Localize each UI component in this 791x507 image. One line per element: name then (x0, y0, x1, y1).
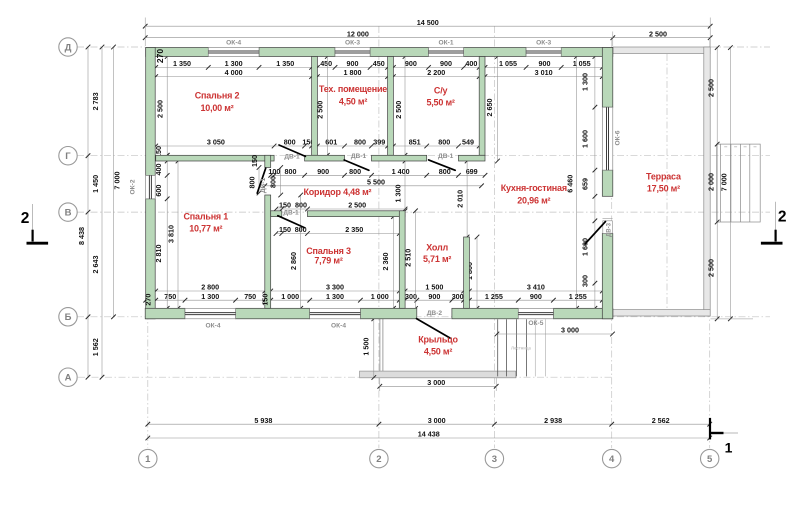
svg-text:1: 1 (145, 454, 151, 465)
svg-text:ОК-3: ОК-3 (345, 40, 360, 47)
svg-text:20,96 м²: 20,96 м² (517, 195, 550, 205)
svg-text:ДВ-1: ДВ-1 (283, 209, 299, 216)
svg-text:4,50 м²: 4,50 м² (424, 346, 452, 356)
svg-text:900: 900 (539, 59, 551, 68)
svg-text:ОК-2: ОК-2 (130, 179, 137, 194)
svg-text:150: 150 (279, 201, 291, 210)
svg-text:2 200: 2 200 (427, 68, 445, 77)
svg-text:450: 450 (373, 59, 385, 68)
svg-text:Тех. помещение: Тех. помещение (319, 84, 387, 94)
svg-text:659: 659 (581, 178, 590, 190)
svg-text:3 300: 3 300 (326, 283, 344, 292)
svg-text:1: 1 (725, 440, 733, 456)
svg-text:800: 800 (349, 167, 361, 176)
svg-text:900: 900 (428, 292, 440, 301)
svg-text:5,50 м²: 5,50 м² (426, 98, 454, 108)
svg-text:2 500: 2 500 (156, 100, 165, 118)
svg-text:800: 800 (248, 177, 257, 189)
svg-text:150: 150 (261, 294, 270, 306)
svg-text:699: 699 (466, 167, 478, 176)
svg-text:1 350: 1 350 (276, 59, 294, 68)
svg-text:3: 3 (492, 454, 497, 465)
svg-text:2 000: 2 000 (707, 173, 716, 191)
svg-text:150: 150 (250, 155, 259, 167)
svg-text:2 562: 2 562 (652, 416, 670, 425)
svg-text:Коридор 4,48 м²: Коридор 4,48 м² (303, 187, 371, 197)
svg-text:А: А (65, 373, 72, 384)
svg-text:900: 900 (347, 59, 359, 68)
svg-text:7 000: 7 000 (719, 173, 728, 191)
svg-text:2: 2 (376, 454, 381, 465)
svg-text:С/у: С/у (434, 86, 448, 96)
svg-text:300: 300 (581, 275, 590, 287)
svg-text:2: 2 (778, 208, 787, 225)
svg-text:7 000: 7 000 (113, 172, 122, 190)
svg-text:1 500: 1 500 (361, 338, 370, 356)
svg-text:5 500: 5 500 (367, 177, 385, 186)
svg-text:Терраса: Терраса (646, 172, 682, 182)
svg-text:2 010: 2 010 (456, 190, 465, 208)
svg-text:450: 450 (320, 59, 332, 68)
svg-text:ДВ-1: ДВ-1 (438, 153, 454, 160)
svg-text:1 300: 1 300 (580, 73, 589, 91)
svg-text:1 300: 1 300 (225, 59, 243, 68)
svg-text:ДВ-1: ДВ-1 (284, 153, 300, 160)
svg-text:2 500: 2 500 (707, 79, 716, 97)
svg-text:399: 399 (373, 138, 385, 147)
svg-text:1 055: 1 055 (499, 59, 517, 68)
svg-text:ОК-4: ОК-4 (331, 323, 346, 330)
svg-text:Лестница: Лестница (511, 346, 531, 351)
svg-text:900: 900 (530, 292, 542, 301)
svg-text:3 000: 3 000 (561, 326, 579, 335)
svg-text:270: 270 (143, 294, 152, 306)
svg-text:3 000: 3 000 (427, 378, 445, 387)
svg-text:4 000: 4 000 (225, 68, 243, 77)
svg-text:900: 900 (317, 167, 329, 176)
svg-text:4,50 м²: 4,50 м² (339, 96, 367, 106)
svg-text:1 255: 1 255 (569, 292, 587, 301)
svg-text:300: 300 (405, 292, 417, 301)
svg-text:Г: Г (65, 151, 71, 162)
svg-text:ДВ-2: ДВ-2 (427, 310, 443, 317)
svg-text:В: В (65, 207, 72, 218)
svg-text:800: 800 (295, 201, 307, 210)
svg-text:ОК-5: ОК-5 (528, 320, 543, 327)
svg-text:2 643: 2 643 (91, 256, 100, 274)
svg-text:1 000: 1 000 (371, 292, 389, 301)
svg-text:750: 750 (244, 292, 256, 301)
svg-text:ОК-3: ОК-3 (536, 40, 551, 47)
svg-text:100: 100 (268, 167, 280, 176)
svg-text:2 360: 2 360 (381, 253, 390, 271)
svg-text:1 350: 1 350 (173, 59, 191, 68)
svg-text:1 500: 1 500 (425, 283, 443, 292)
svg-text:1 800: 1 800 (344, 68, 362, 77)
svg-text:ОК-1: ОК-1 (438, 40, 453, 47)
svg-text:1 300: 1 300 (201, 292, 219, 301)
svg-text:1 300: 1 300 (393, 185, 402, 203)
svg-text:4: 4 (609, 454, 615, 465)
svg-text:5,71 м²: 5,71 м² (423, 254, 451, 264)
svg-text:3 010: 3 010 (535, 68, 553, 77)
svg-text:2 783: 2 783 (91, 92, 100, 110)
svg-text:10,77 м²: 10,77 м² (189, 224, 222, 234)
svg-text:2 500: 2 500 (394, 101, 403, 119)
svg-text:549: 549 (462, 138, 474, 147)
svg-text:7,79 м²: 7,79 м² (314, 255, 342, 265)
svg-text:3 810: 3 810 (167, 225, 176, 243)
svg-text:8 438: 8 438 (77, 227, 86, 245)
svg-text:2 500: 2 500 (707, 259, 716, 277)
svg-text:2: 2 (21, 210, 30, 227)
svg-text:1 562: 1 562 (91, 338, 100, 356)
svg-text:5: 5 (707, 454, 713, 465)
svg-text:800: 800 (354, 138, 366, 147)
svg-text:150: 150 (279, 225, 291, 234)
svg-text:ОК-4: ОК-4 (226, 40, 241, 47)
svg-text:3 410: 3 410 (527, 283, 545, 292)
svg-text:2 650: 2 650 (485, 99, 494, 117)
svg-text:800: 800 (438, 138, 450, 147)
svg-text:Крыльцо: Крыльцо (418, 335, 458, 345)
svg-text:2 500: 2 500 (649, 29, 667, 38)
svg-text:14 500: 14 500 (417, 18, 439, 27)
svg-text:1 600: 1 600 (580, 130, 589, 148)
svg-text:ДВ-1: ДВ-1 (260, 178, 267, 194)
svg-text:Спальня 2: Спальня 2 (195, 91, 240, 101)
svg-text:900: 900 (440, 59, 452, 68)
svg-text:270: 270 (155, 49, 165, 63)
svg-text:Д: Д (65, 42, 72, 53)
svg-text:400: 400 (465, 59, 477, 68)
svg-text:2 800: 2 800 (201, 283, 219, 292)
svg-text:800: 800 (269, 176, 278, 188)
svg-text:Б: Б (65, 312, 72, 323)
svg-text:14 438: 14 438 (418, 430, 440, 439)
svg-text:10,00 м²: 10,00 м² (200, 103, 233, 113)
svg-text:300: 300 (452, 292, 464, 301)
svg-text:Холл: Холл (426, 242, 448, 252)
svg-text:2 860: 2 860 (289, 252, 298, 270)
svg-text:3 000: 3 000 (428, 416, 446, 425)
svg-text:851: 851 (409, 138, 421, 147)
svg-text:1 255: 1 255 (485, 292, 503, 301)
svg-text:2 500: 2 500 (348, 201, 366, 210)
svg-text:900: 900 (405, 59, 417, 68)
svg-text:3 050: 3 050 (207, 138, 225, 147)
svg-text:12 000: 12 000 (347, 29, 369, 38)
svg-text:1 300: 1 300 (326, 292, 344, 301)
svg-text:800: 800 (284, 138, 296, 147)
svg-text:17,50 м²: 17,50 м² (647, 183, 680, 193)
svg-text:ОК-4: ОК-4 (205, 323, 220, 330)
svg-text:2 938: 2 938 (544, 416, 562, 425)
svg-text:ДВ-1: ДВ-1 (351, 153, 367, 160)
svg-text:1 000: 1 000 (281, 292, 299, 301)
svg-text:Спальня 1: Спальня 1 (184, 211, 229, 221)
svg-text:2 350: 2 350 (345, 225, 363, 234)
svg-text:1 450: 1 450 (91, 175, 100, 193)
svg-text:5 938: 5 938 (254, 416, 272, 425)
svg-text:ОК-6: ОК-6 (615, 130, 622, 145)
svg-text:750: 750 (164, 292, 176, 301)
svg-text:1 055: 1 055 (573, 59, 591, 68)
svg-text:ДВ-3: ДВ-3 (606, 222, 612, 237)
svg-text:Кухня-гостиная: Кухня-гостиная (501, 183, 567, 193)
svg-text:800: 800 (285, 167, 297, 176)
svg-text:1 400: 1 400 (392, 167, 410, 176)
